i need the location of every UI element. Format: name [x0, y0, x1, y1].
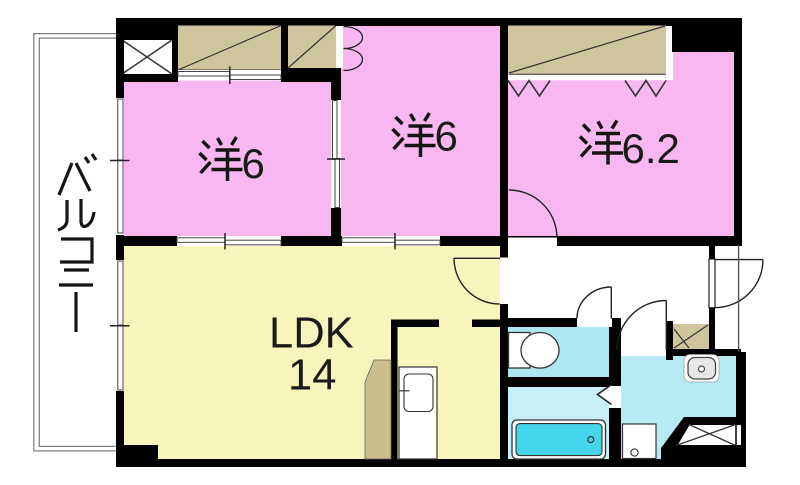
svg-text:LDK: LDK: [269, 310, 354, 358]
svg-text:14: 14: [288, 352, 336, 400]
svg-text:6: 6: [242, 140, 265, 187]
svg-text:6.2: 6.2: [622, 125, 680, 172]
svg-text:6: 6: [435, 113, 458, 160]
